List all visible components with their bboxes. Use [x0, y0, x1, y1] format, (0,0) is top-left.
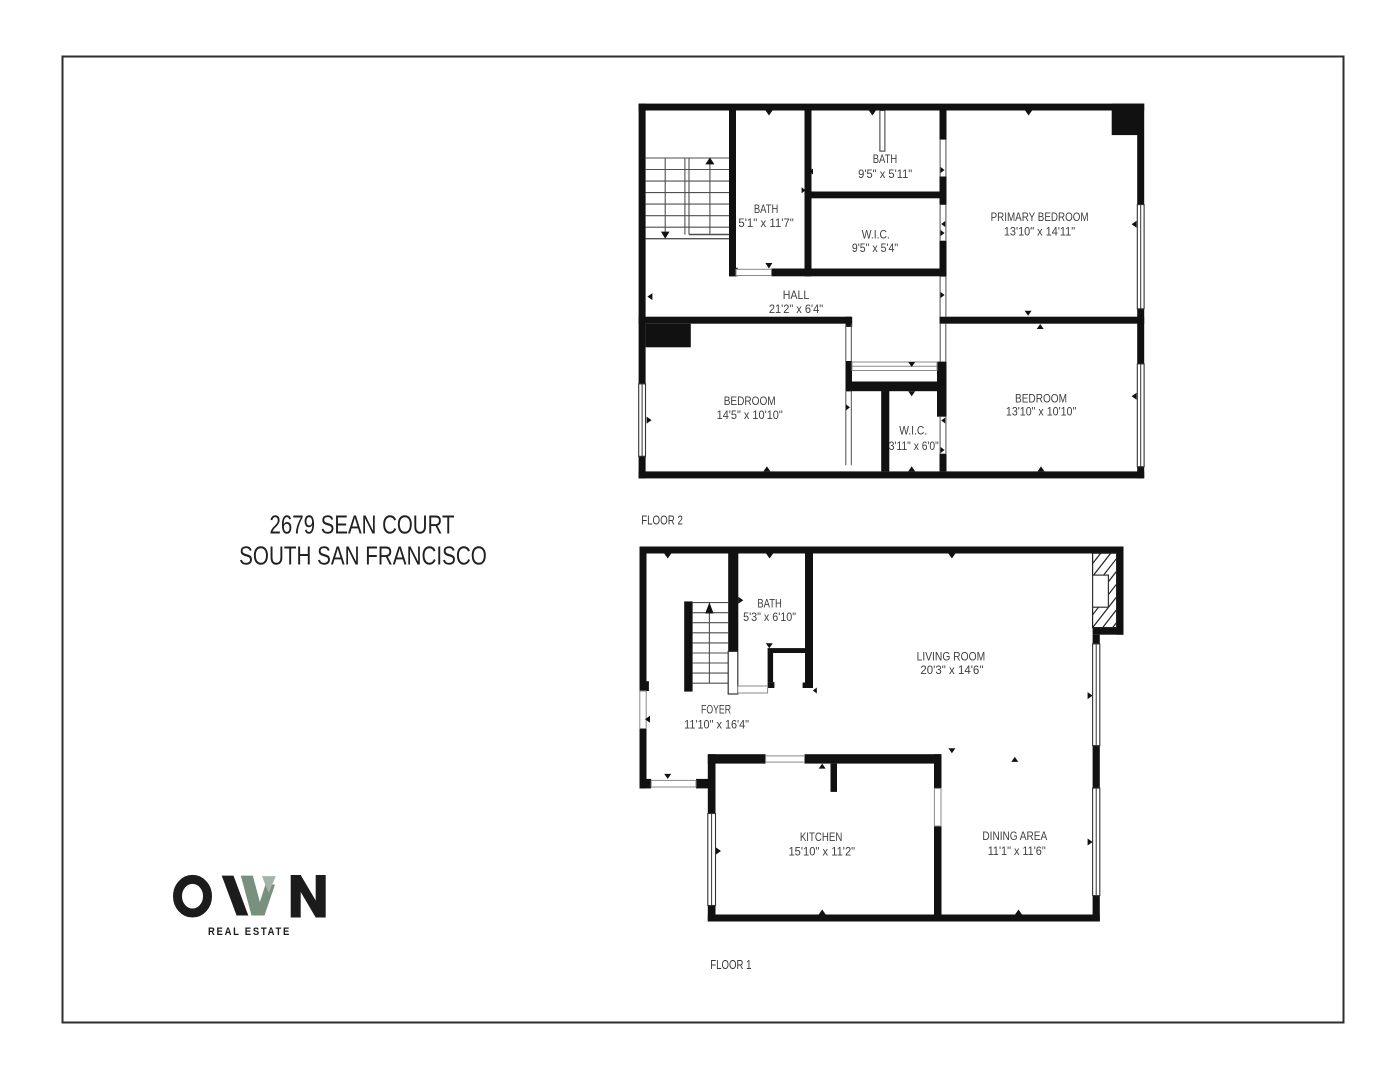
- svg-text:FOYER: FOYER: [701, 703, 731, 717]
- svg-text:BATH: BATH: [757, 597, 782, 611]
- svg-text:FLOOR 1: FLOOR 1: [710, 958, 751, 972]
- svg-text:BATH: BATH: [873, 152, 898, 166]
- svg-text:BEDROOM: BEDROOM: [1015, 391, 1067, 405]
- svg-text:5'1" x 11'7": 5'1" x 11'7": [738, 216, 793, 230]
- svg-text:DINING AREA: DINING AREA: [982, 829, 1047, 843]
- svg-text:BEDROOM: BEDROOM: [724, 394, 776, 408]
- svg-text:PRIMARY BEDROOM: PRIMARY BEDROOM: [991, 210, 1089, 224]
- svg-text:HALL: HALL: [783, 288, 810, 302]
- svg-text:W.I.C.: W.I.C.: [899, 424, 927, 438]
- svg-text:W.I.C.: W.I.C.: [862, 227, 890, 241]
- svg-text:5'3" x 6'10": 5'3" x 6'10": [743, 610, 796, 624]
- svg-text:13'10" x 10'10": 13'10" x 10'10": [1006, 405, 1076, 419]
- svg-text:21'2" x 6'4": 21'2" x 6'4": [769, 302, 823, 316]
- svg-text:2679 SEAN COURT: 2679 SEAN COURT: [270, 509, 455, 539]
- svg-text:11'10" x 16'4": 11'10" x 16'4": [684, 718, 749, 732]
- svg-text:LIVING ROOM: LIVING ROOM: [917, 650, 986, 664]
- svg-text:9'5" x 5'4": 9'5" x 5'4": [852, 241, 898, 255]
- svg-text:BATH: BATH: [754, 202, 779, 216]
- svg-text:20'3" x 14'6": 20'3" x 14'6": [920, 663, 983, 677]
- svg-text:15'10" x 11'2": 15'10" x 11'2": [788, 845, 855, 859]
- svg-text:3'11" x 6'0": 3'11" x 6'0": [889, 439, 939, 453]
- svg-text:KITCHEN: KITCHEN: [800, 830, 843, 844]
- svg-text:FLOOR 2: FLOOR 2: [641, 514, 683, 528]
- svg-text:9'5" x 5'11": 9'5" x 5'11": [858, 167, 912, 181]
- svg-text:11'1" x 11'6": 11'1" x 11'6": [988, 844, 1046, 858]
- svg-text:REAL ESTATE: REAL ESTATE: [208, 926, 291, 938]
- svg-text:13'10" x 14'11": 13'10" x 14'11": [1004, 225, 1075, 239]
- svg-text:14'5" x 10'10": 14'5" x 10'10": [717, 408, 783, 422]
- svg-text:SOUTH SAN FRANCISCO: SOUTH SAN FRANCISCO: [239, 540, 487, 570]
